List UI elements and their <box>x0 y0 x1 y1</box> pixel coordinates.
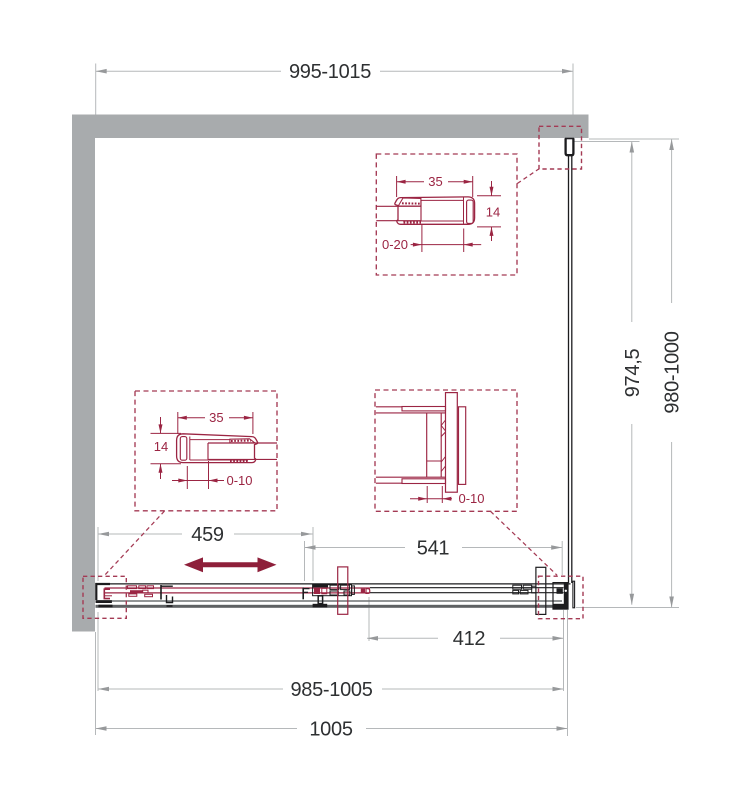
svg-text:35: 35 <box>209 410 223 425</box>
svg-text:974,5: 974,5 <box>622 349 644 398</box>
svg-text:995-1015: 995-1015 <box>289 61 371 83</box>
svg-text:35: 35 <box>428 174 442 189</box>
svg-text:14: 14 <box>154 439 168 454</box>
svg-text:0-10: 0-10 <box>458 491 484 506</box>
svg-text:1005: 1005 <box>309 718 352 740</box>
svg-text:985-1005: 985-1005 <box>290 679 372 701</box>
svg-text:14: 14 <box>486 204 500 219</box>
svg-text:0-20: 0-20 <box>382 237 408 252</box>
svg-text:459: 459 <box>191 524 224 546</box>
svg-text:541: 541 <box>417 537 450 559</box>
svg-text:980-1000: 980-1000 <box>662 331 684 413</box>
svg-text:412: 412 <box>453 628 486 650</box>
svg-text:0-10: 0-10 <box>226 473 252 488</box>
